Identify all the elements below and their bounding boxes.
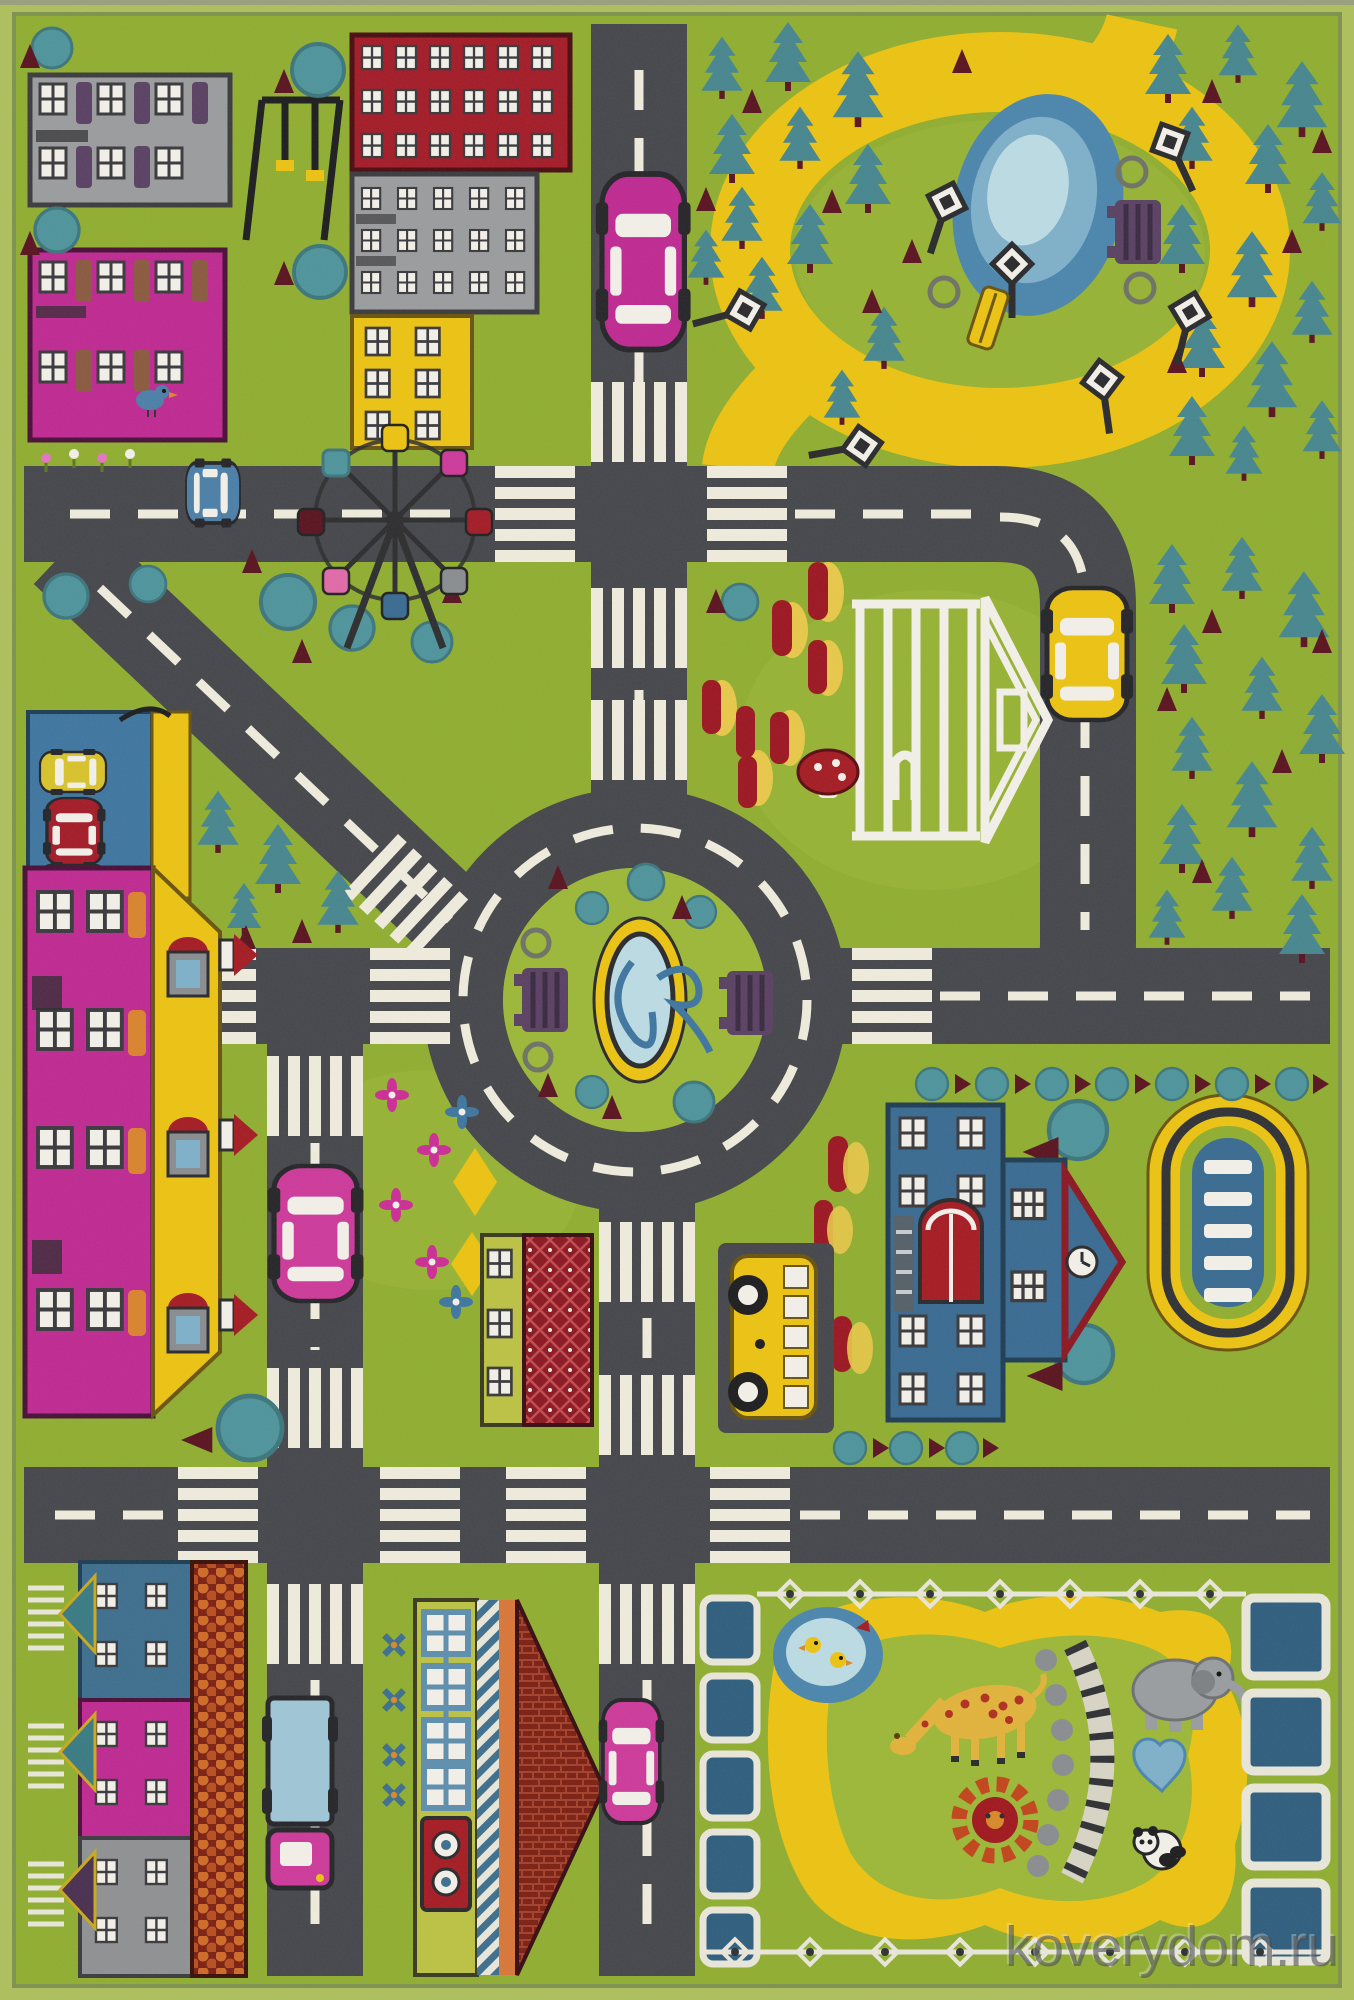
- rug-photo: koverydom.ru koverydom.ru: [0, 0, 1354, 2000]
- watermark: koverydom.ru koverydom.ru: [1003, 1913, 1338, 1979]
- carpet-texture: [0, 0, 1354, 2000]
- watermark-text: koverydom.ru: [1005, 1915, 1338, 1979]
